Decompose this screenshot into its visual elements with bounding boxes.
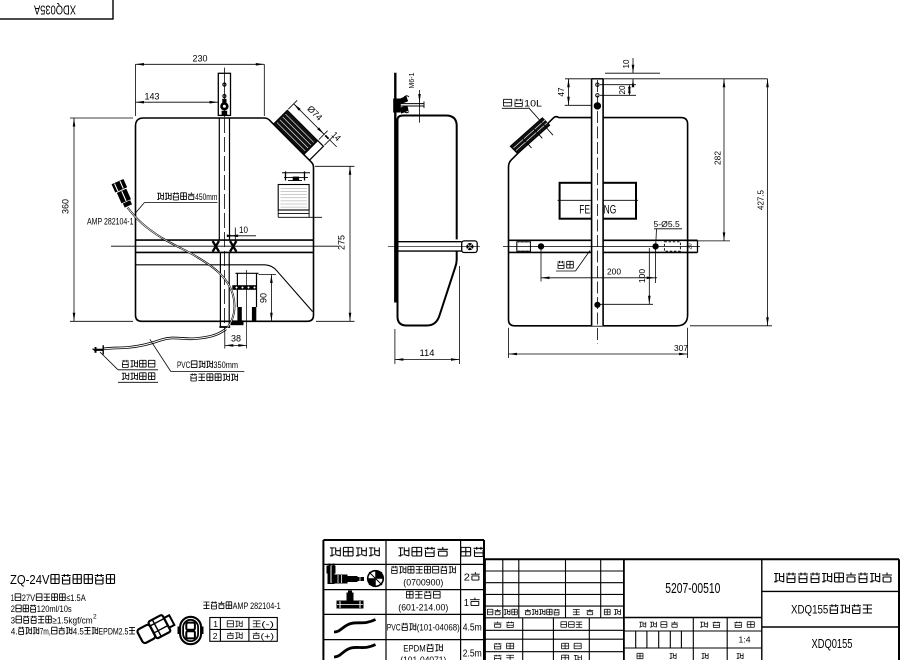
svg-text:PVC: PVC	[387, 623, 401, 634]
svg-text:4.5: 4.5	[73, 626, 84, 637]
svg-text:XDQ035A: XDQ035A	[34, 3, 76, 17]
svg-text:275: 275	[337, 235, 347, 250]
svg-text:EPDM: EPDM	[403, 644, 425, 655]
svg-text:307: 307	[674, 343, 688, 353]
svg-text:47: 47	[556, 87, 566, 96]
svg-text:5-Ø5.5: 5-Ø5.5	[654, 219, 680, 229]
svg-text:2.5m: 2.5m	[463, 649, 482, 660]
svg-text:AMP 282104-1: AMP 282104-1	[87, 217, 134, 228]
svg-text:143: 143	[145, 92, 160, 102]
svg-text:1:4: 1:4	[739, 636, 752, 645]
svg-text:120ml/10s: 120ml/10s	[37, 604, 72, 615]
svg-text:90: 90	[259, 293, 269, 303]
svg-text:2: 2	[11, 604, 15, 615]
svg-text:27V: 27V	[22, 593, 36, 604]
svg-text:1: 1	[213, 619, 218, 629]
svg-text:200: 200	[607, 267, 621, 277]
svg-text:ZQ-24V: ZQ-24V	[10, 573, 50, 587]
svg-text:(601-214.00): (601-214.00)	[398, 603, 448, 614]
svg-text:(-): (-)	[261, 619, 274, 629]
svg-text:EPDM2.5: EPDM2.5	[99, 626, 129, 637]
svg-text:20: 20	[688, 243, 694, 249]
svg-text:(+): (+)	[261, 631, 275, 641]
svg-text:AMP 282104-1: AMP 282104-1	[233, 601, 281, 612]
svg-text:(101-04068): (101-04068)	[417, 623, 460, 634]
svg-text:360: 360	[61, 199, 71, 214]
svg-text:(0700900): (0700900)	[403, 578, 443, 589]
svg-text:2: 2	[464, 572, 470, 584]
svg-text:1: 1	[464, 597, 469, 609]
svg-text:3: 3	[11, 615, 15, 626]
svg-text:7m,: 7m,	[40, 626, 51, 637]
svg-text:38: 38	[231, 334, 241, 344]
svg-text:XDQ0155: XDQ0155	[812, 637, 853, 651]
svg-text:≤1.5A: ≤1.5A	[66, 593, 86, 604]
svg-text:2: 2	[213, 631, 218, 641]
svg-text:4.5m: 4.5m	[463, 623, 482, 634]
svg-text:≥1.5kgf/cm: ≥1.5kgf/cm	[52, 615, 92, 626]
svg-text:4.: 4.	[11, 626, 18, 637]
svg-text:M6-1: M6-1	[407, 73, 416, 89]
svg-text:1: 1	[11, 593, 14, 604]
svg-text:10: 10	[621, 59, 631, 68]
svg-text:114: 114	[420, 348, 435, 358]
svg-text:20: 20	[617, 85, 627, 94]
svg-text:10L: 10L	[524, 99, 542, 110]
svg-text:XDQ155: XDQ155	[791, 605, 828, 617]
svg-text:10: 10	[239, 225, 248, 235]
svg-text:PVC: PVC	[177, 360, 190, 371]
svg-text:100: 100	[637, 269, 647, 283]
svg-text:2: 2	[93, 614, 97, 621]
svg-text:350mm: 350mm	[213, 360, 238, 371]
svg-text:(101-04071): (101-04071)	[400, 655, 446, 660]
svg-text:427.5: 427.5	[756, 190, 766, 210]
svg-text:230: 230	[193, 54, 208, 64]
svg-text:450mm: 450mm	[195, 192, 217, 203]
svg-text:282: 282	[713, 151, 723, 165]
svg-text:5207-00510: 5207-00510	[665, 580, 720, 597]
